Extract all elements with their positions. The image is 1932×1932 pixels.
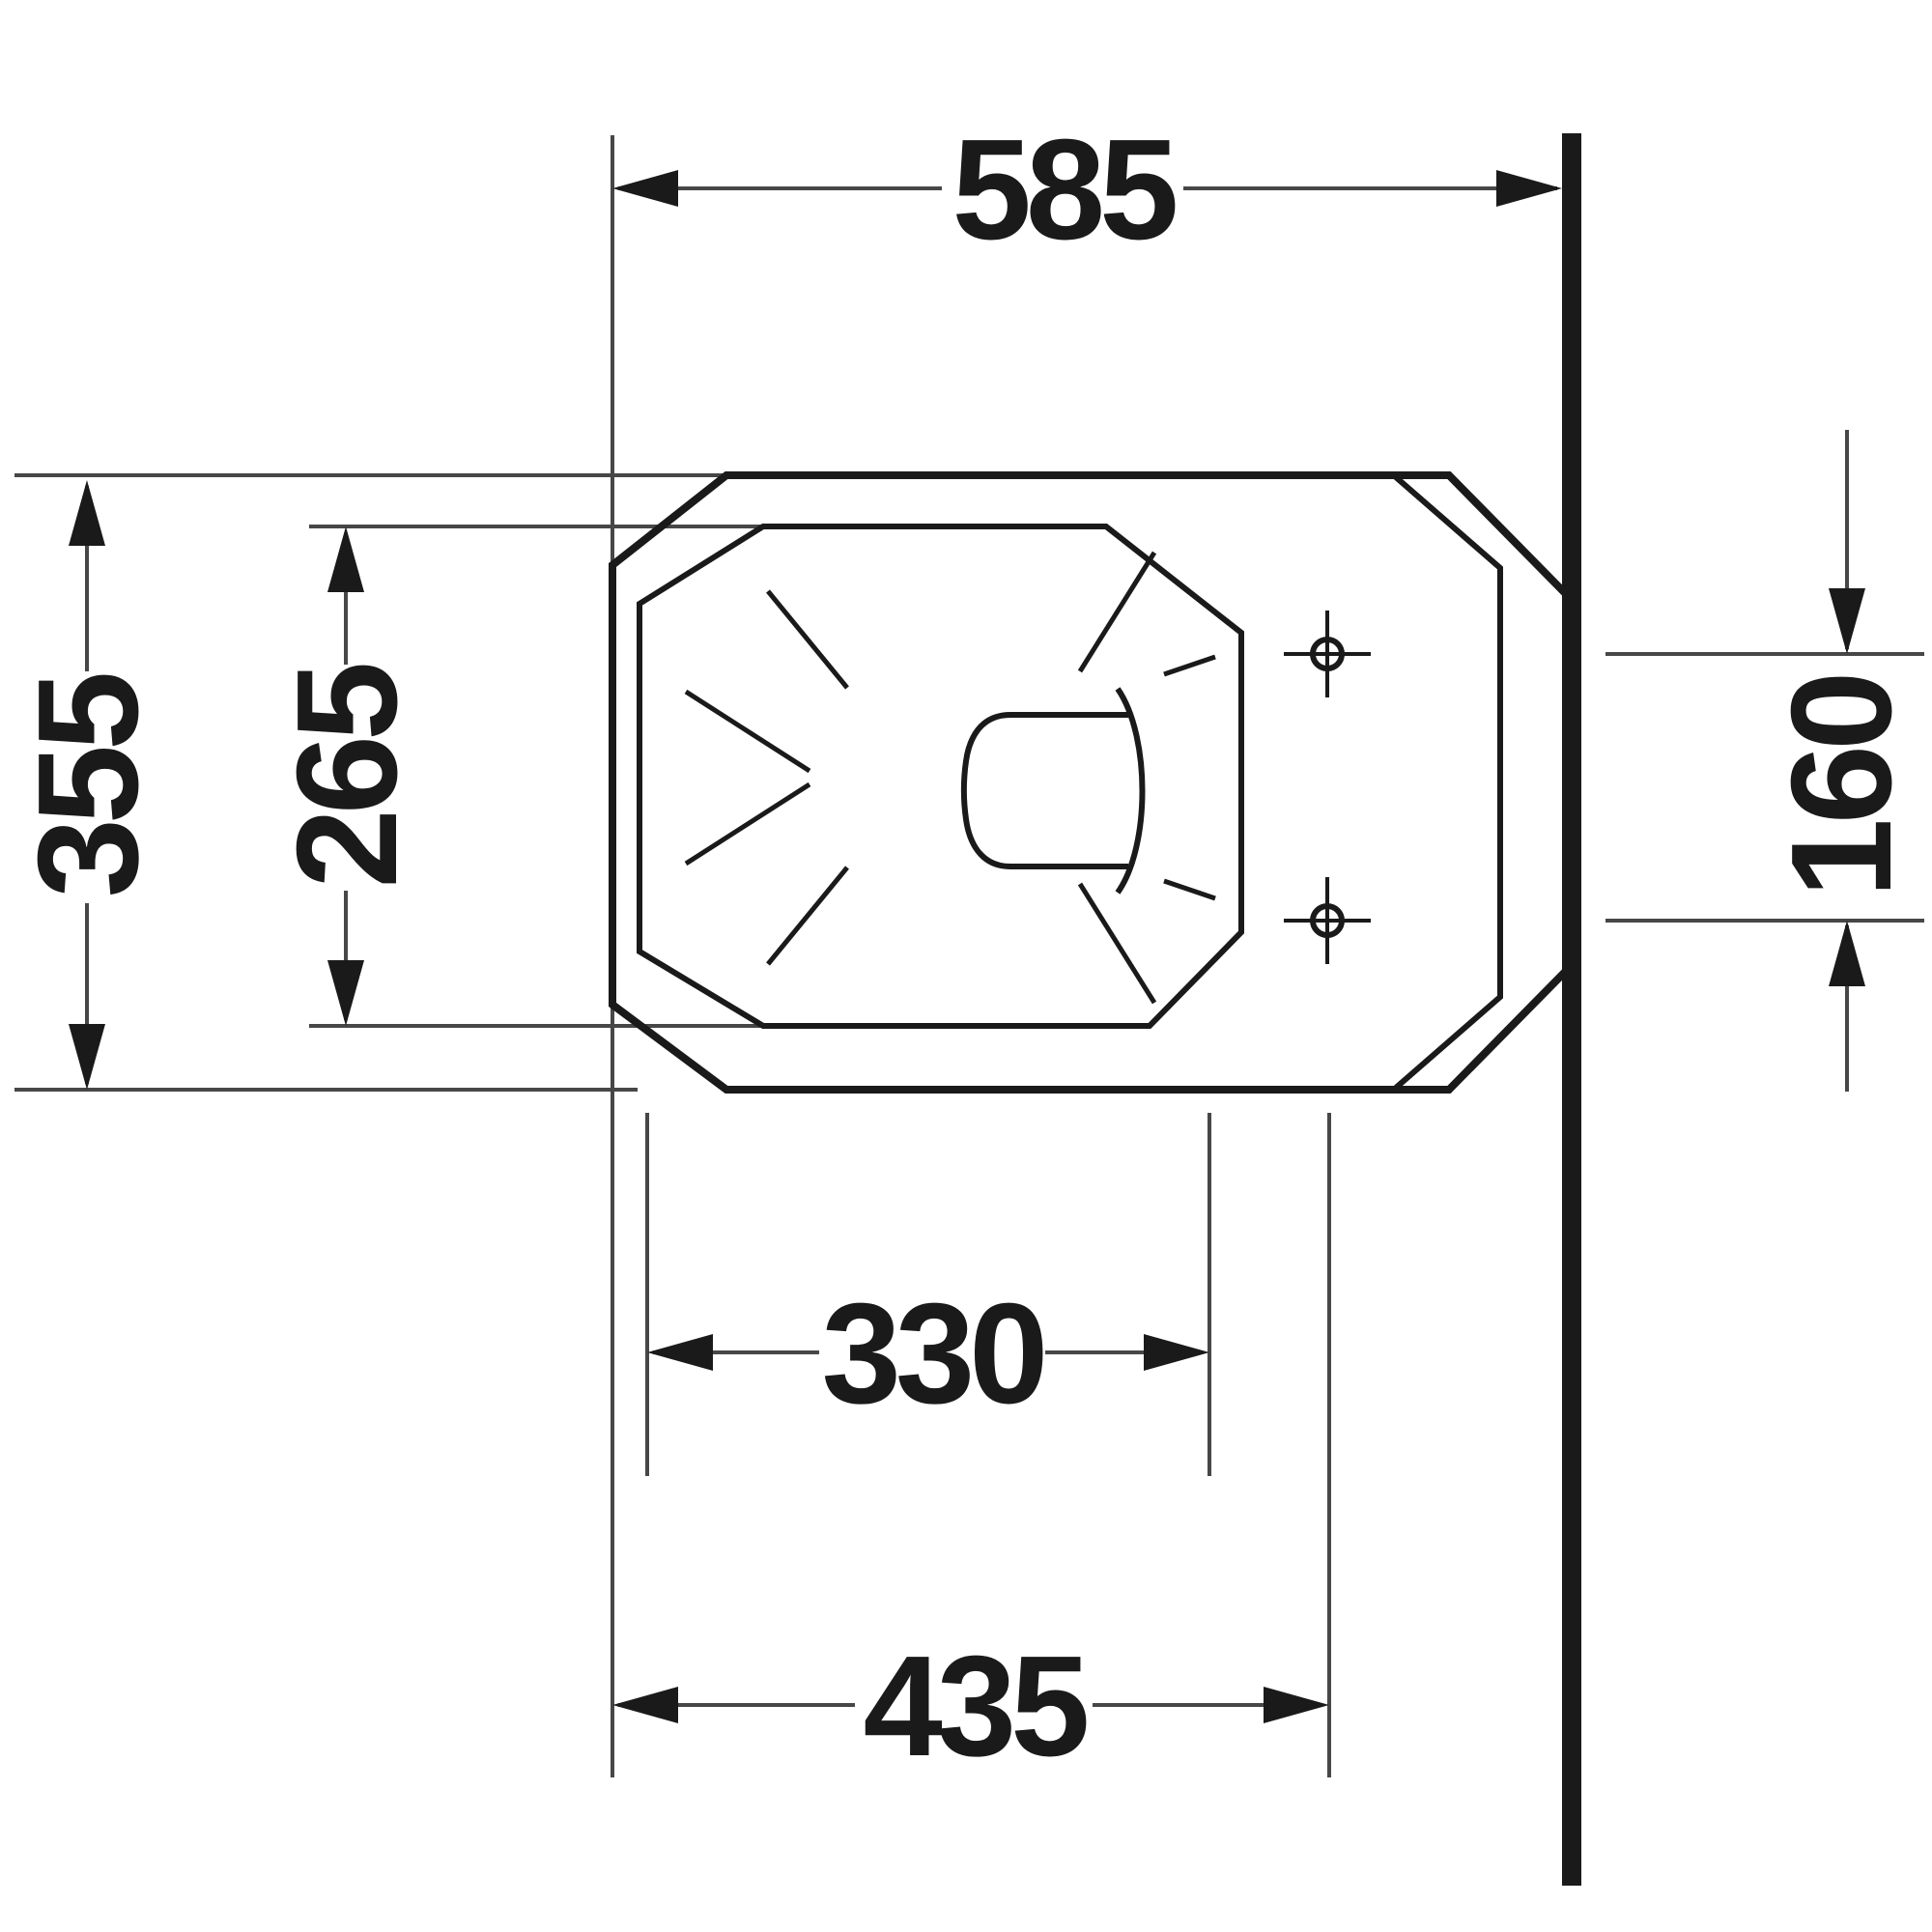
arrowhead-up (1829, 921, 1865, 986)
arrowhead-right (1264, 1687, 1329, 1723)
arrowhead-left (612, 1687, 678, 1723)
fixing-hole-top (1284, 611, 1371, 697)
arrowhead-up (327, 526, 364, 592)
arrowhead-up (69, 480, 105, 546)
drain-outline (964, 715, 1128, 867)
dimension-overall-width: 355 (9, 480, 168, 1090)
dimension-fixing-hole-spacing: 160 (1762, 430, 1921, 1092)
dim-fixing-hole-spacing-label: 160 (1762, 676, 1921, 898)
dim-total-depth-label: 585 (952, 110, 1177, 270)
drain-trap-arc (1118, 689, 1143, 893)
dim-inner-bowl-width-label: 265 (268, 665, 427, 889)
arrowhead-right (1496, 170, 1562, 207)
arrowhead-left (647, 1334, 713, 1371)
dimension-inner-bowl-depth: 330 (647, 1274, 1209, 1434)
dimension-front-to-fixing-holes: 435 (612, 1627, 1329, 1786)
dimension-drawing: 585 355 265 160 330 435 (0, 0, 1932, 1932)
arrowhead-down (327, 960, 364, 1026)
fixing-hole-bottom (1284, 877, 1371, 964)
dim-front-to-fixing-holes-label: 435 (864, 1627, 1088, 1786)
bowl-funnel-lines (686, 553, 1215, 1003)
dimension-inner-bowl-width: 265 (268, 526, 427, 1026)
wall-line (1562, 133, 1581, 1886)
arrowhead-down (1829, 588, 1865, 654)
arrowhead-right (1144, 1334, 1209, 1371)
extension-lines (14, 135, 1924, 1777)
dim-overall-width-label: 355 (9, 674, 168, 898)
drain-opening (964, 689, 1143, 893)
dim-inner-bowl-depth-label: 330 (822, 1274, 1044, 1434)
arrowhead-down (69, 1024, 105, 1090)
toilet-back-step-outline (1396, 477, 1500, 1088)
bowl-rim-outline (639, 526, 1241, 1026)
arrowhead-left (612, 170, 678, 207)
dimension-total-depth: 585 (612, 110, 1562, 270)
toilet-outer-outline (612, 475, 1573, 1090)
